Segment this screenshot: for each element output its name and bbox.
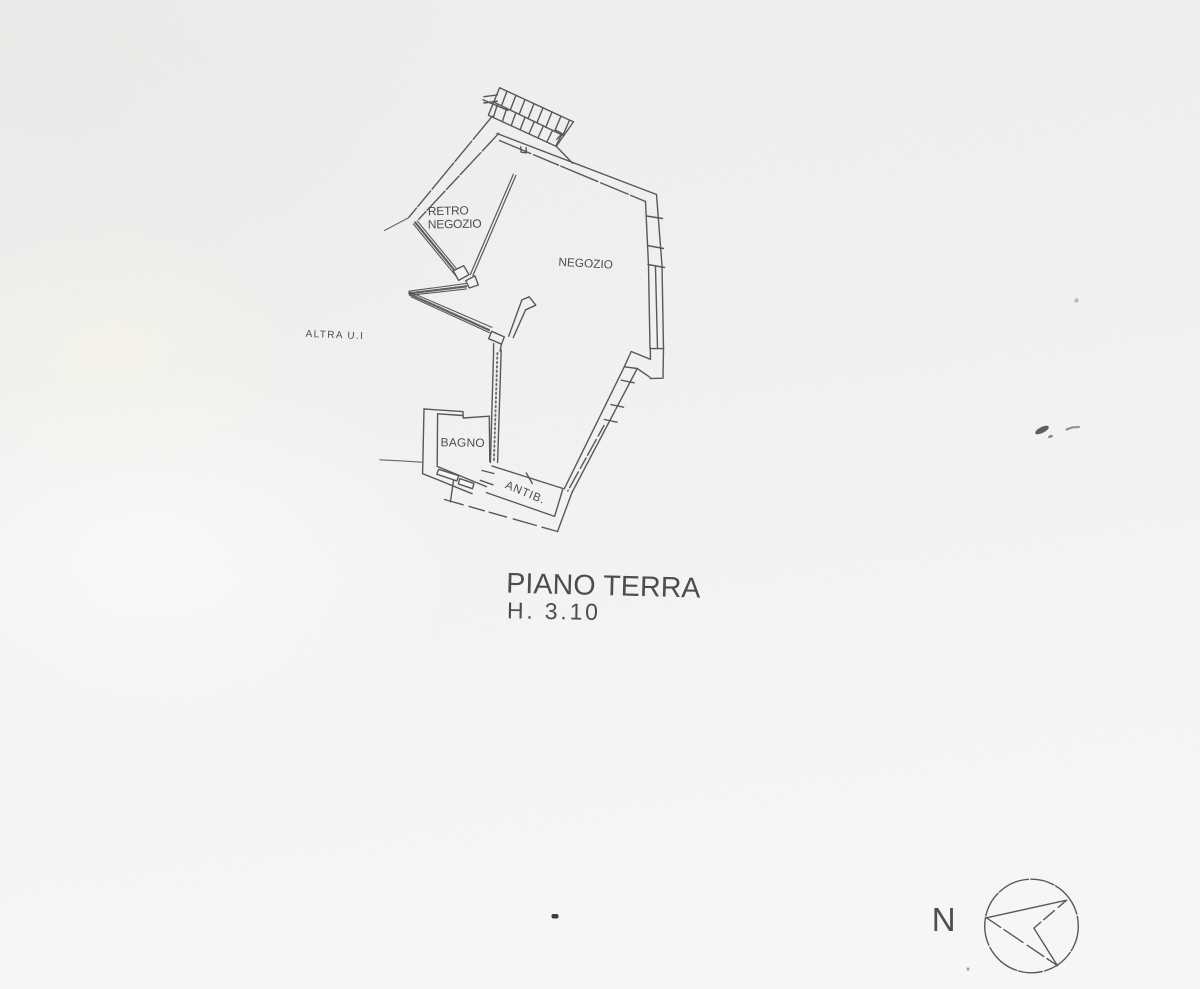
svg-text:NEGOZIO: NEGOZIO: [558, 255, 613, 272]
svg-text:N: N: [932, 901, 956, 938]
svg-text:BAGNO: BAGNO: [440, 435, 485, 450]
svg-text:NEGOZIO: NEGOZIO: [428, 217, 482, 232]
svg-text:H. 3.10: H. 3.10: [507, 597, 601, 625]
svg-text:ALTRA U.I: ALTRA U.I: [305, 329, 364, 342]
